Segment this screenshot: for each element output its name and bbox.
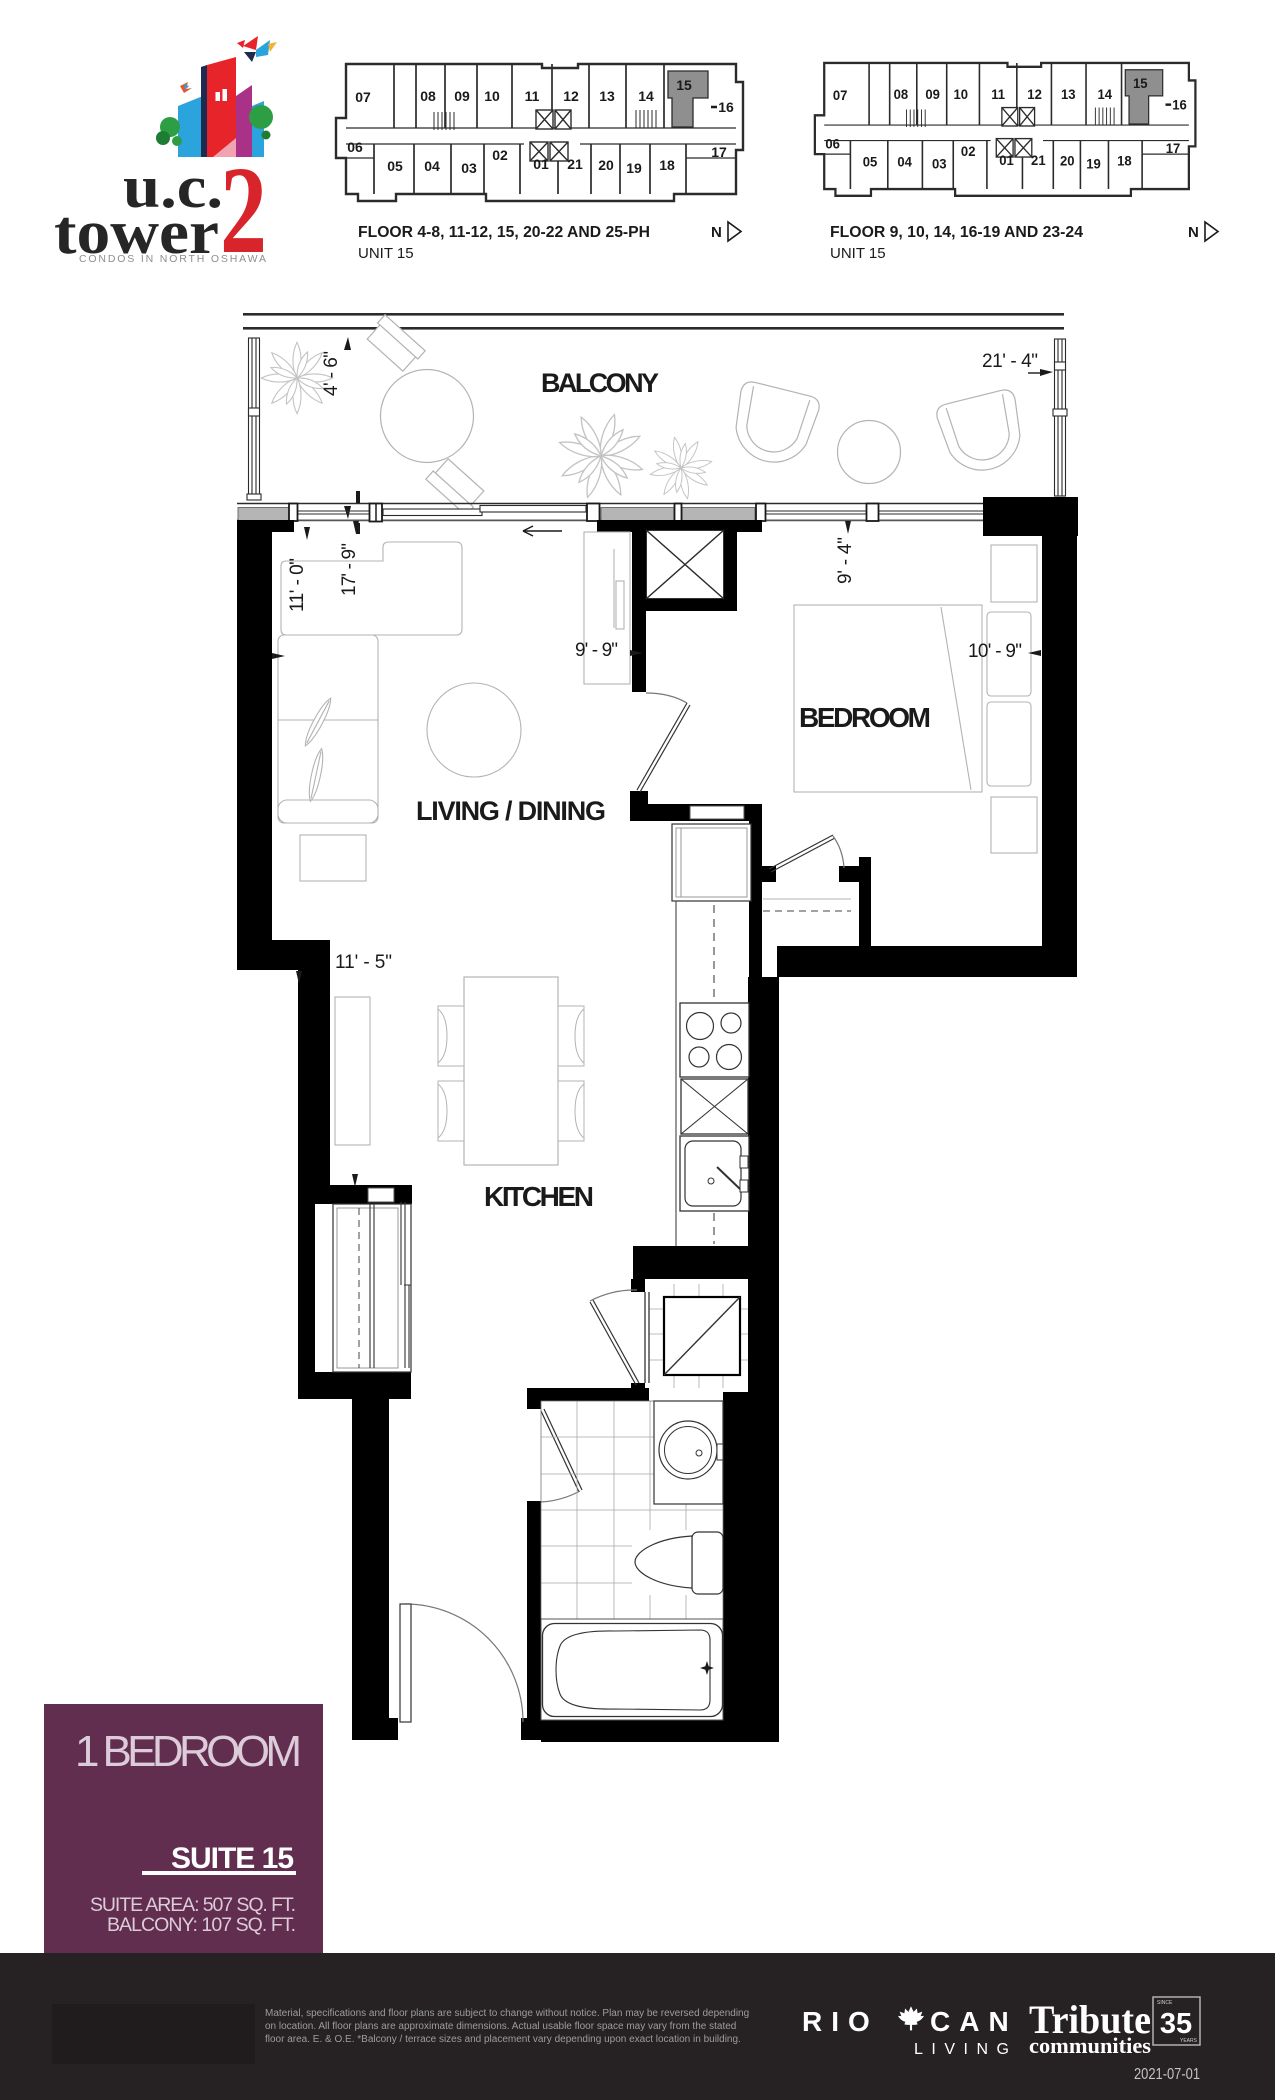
svg-text:9' - 4": 9' - 4" [835, 537, 856, 584]
svg-text:N: N [711, 224, 722, 241]
svg-text:2021-07-01: 2021-07-01 [1134, 2066, 1200, 2083]
svg-text:21' - 4": 21' - 4" [982, 351, 1038, 372]
svg-text:UNIT 15: UNIT 15 [358, 245, 414, 262]
svg-text:BALCONY: 107 SQ. FT.: BALCONY: 107 SQ. FT. [107, 1914, 296, 1936]
svg-text:SINCE: SINCE [1157, 2000, 1173, 2006]
svg-text:UNIT 15: UNIT 15 [830, 245, 886, 262]
svg-text:SUITE AREA: 507 SQ. FT.: SUITE AREA: 507 SQ. FT. [90, 1894, 296, 1916]
svg-text:YEARS: YEARS [1180, 2038, 1198, 2044]
svg-text:RIO: RIO [802, 2006, 879, 2037]
svg-text:Material, specifications and f: Material, specifications and floor plans… [265, 2008, 749, 2019]
svg-text:SUITE 15: SUITE 15 [171, 1842, 296, 1875]
svg-text:FLOOR 9, 10, 14, 16-19 AND 23-: FLOOR 9, 10, 14, 16-19 AND 23-24 [830, 224, 1083, 241]
svg-text:10' - 9": 10' - 9" [968, 641, 1022, 662]
svg-text:17' - 9": 17' - 9" [339, 543, 360, 596]
svg-text:LIVING: LIVING [914, 2041, 1017, 2058]
svg-text:FLOOR 4-8, 11-12, 15, 20-22 AN: FLOOR 4-8, 11-12, 15, 20-22 AND 25-PH [358, 224, 650, 241]
svg-text:communities: communities [1029, 2033, 1151, 2058]
svg-text:LIVING / DINING: LIVING / DINING [416, 796, 606, 826]
svg-text:N: N [1188, 224, 1199, 241]
svg-text:4' - 6": 4' - 6" [321, 351, 342, 396]
svg-text:BALCONY: BALCONY [541, 368, 659, 398]
svg-text:9' - 9": 9' - 9" [575, 640, 618, 661]
svg-text:BEDROOM: BEDROOM [799, 702, 931, 733]
svg-text:CAN: CAN [930, 2006, 1018, 2037]
svg-text:11' - 5": 11' - 5" [335, 952, 392, 973]
svg-text:KITCHEN: KITCHEN [484, 1181, 594, 1212]
svg-text:on location. All floor plans a: on location. All floor plans are approxi… [265, 2021, 736, 2032]
svg-text:floor area. E. & O.E. *Balco: floor area. E. & O.E. *Balcony / terrace… [265, 2034, 741, 2045]
svg-text:35: 35 [1160, 2008, 1192, 2040]
svg-text:1 BEDROOM: 1 BEDROOM [75, 1727, 302, 1776]
svg-text:11' - 0": 11' - 0" [287, 558, 308, 612]
